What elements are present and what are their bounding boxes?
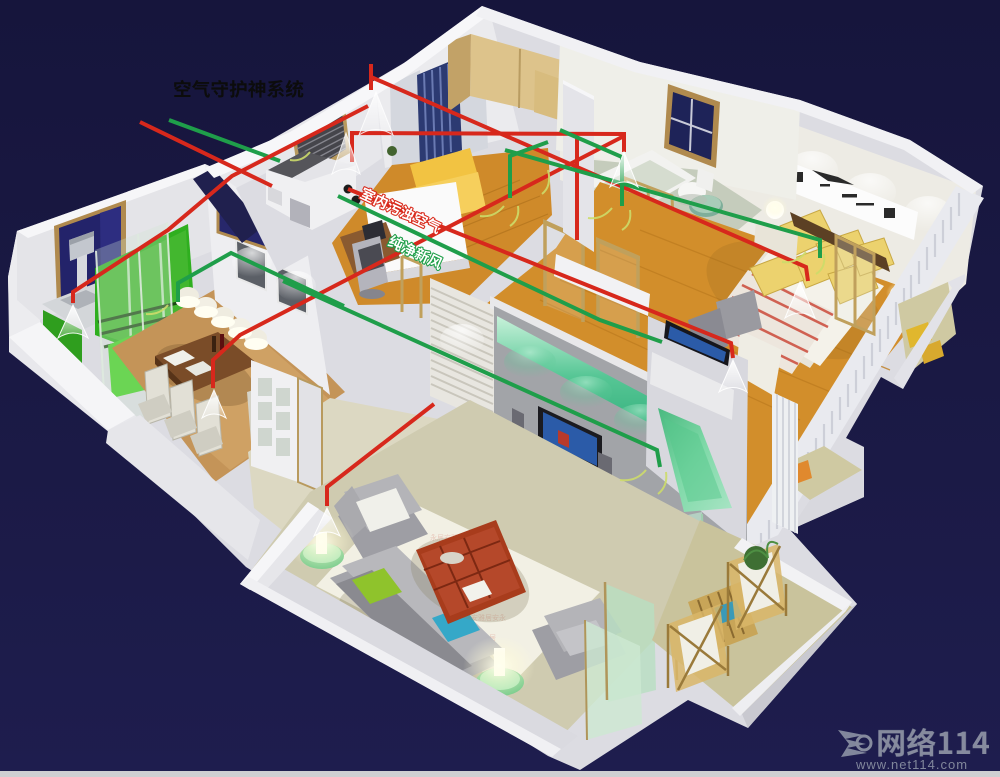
svg-text:www.net114.com: www.net114.com bbox=[855, 757, 968, 772]
